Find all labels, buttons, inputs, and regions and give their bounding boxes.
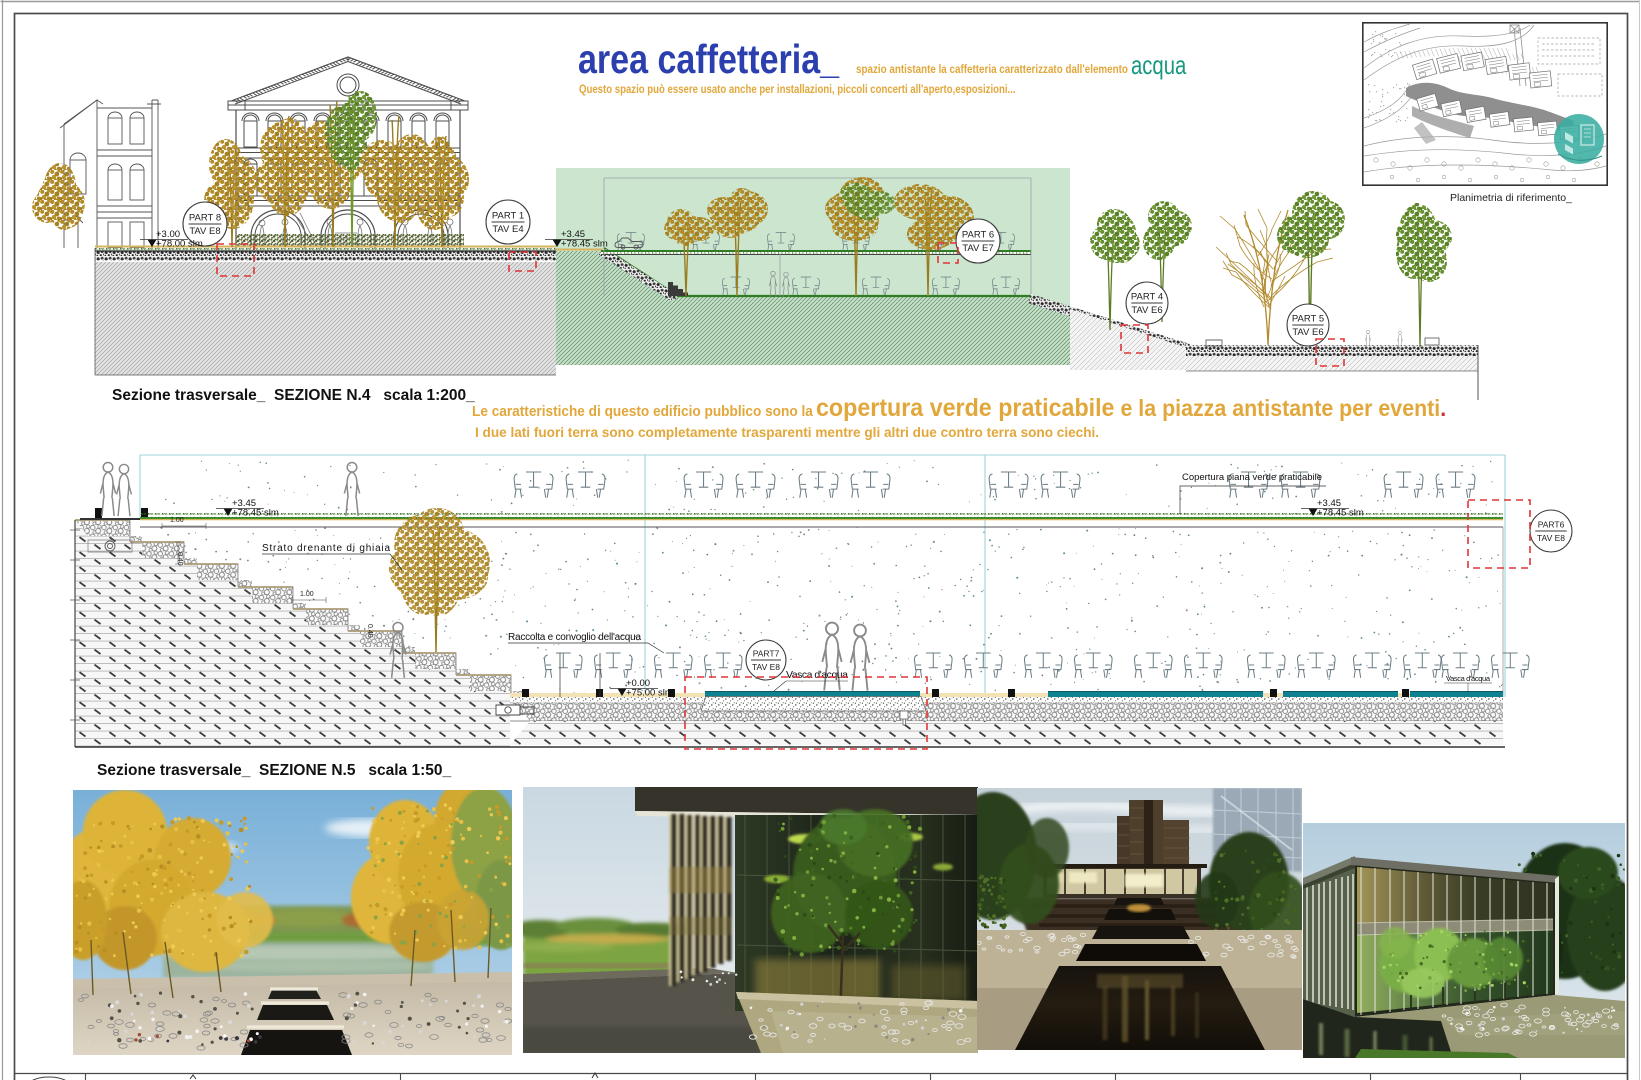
svg-text:Vasca d'acqua: Vasca d'acqua <box>1446 674 1491 683</box>
svg-text:+75.00 slm: +75.00 slm <box>626 688 673 699</box>
svg-text:PART6: PART6 <box>1538 520 1565 530</box>
svg-text:+78.00 slm: +78.00 slm <box>156 239 203 250</box>
svg-text:PART 4: PART 4 <box>1131 292 1163 303</box>
svg-text:TAV E8: TAV E8 <box>752 662 780 672</box>
svg-text:Raccolta e convoglio dell'acqu: Raccolta e convoglio dell'acqua <box>508 632 641 643</box>
svg-text:+78.45 slm: +78.45 slm <box>232 508 279 519</box>
svg-text:Vasca d'acqua: Vasca d'acqua <box>786 669 848 681</box>
svg-text:PART7: PART7 <box>753 649 780 659</box>
svg-text:0.40: 0.40 <box>366 624 373 638</box>
svg-text:Strato drenante di ghiaia: Strato drenante di ghiaia <box>262 543 390 554</box>
svg-text:1.00: 1.00 <box>170 517 184 524</box>
svg-text:PART 1: PART 1 <box>492 211 524 222</box>
svg-text:+78.45 slm: +78.45 slm <box>1317 508 1364 519</box>
svg-text:TAV E6: TAV E6 <box>1131 305 1162 316</box>
svg-text:PART 6: PART 6 <box>962 230 994 241</box>
svg-text:+78.45 slm: +78.45 slm <box>561 239 608 250</box>
svg-text:TAV E8: TAV E8 <box>1537 533 1565 543</box>
svg-text:TAV E6: TAV E6 <box>1292 327 1323 338</box>
svg-text:1.00: 1.00 <box>300 591 314 598</box>
svg-text:0.40: 0.40 <box>176 552 183 566</box>
svg-text:PART 5: PART 5 <box>1292 314 1324 325</box>
svg-text:TAV E4: TAV E4 <box>492 224 523 235</box>
svg-text:Copertura piana verde praticab: Copertura piana verde praticabile <box>1182 472 1322 483</box>
svg-text:PART 8: PART 8 <box>189 213 221 224</box>
svg-text:TAV E7: TAV E7 <box>962 243 993 254</box>
svg-text:TAV E8: TAV E8 <box>189 226 220 237</box>
